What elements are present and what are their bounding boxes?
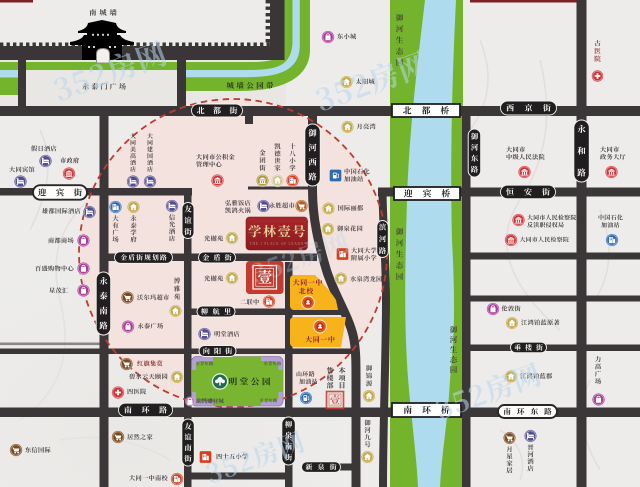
svg-text:THE 1 PLACE OF LEARN: THE 1 PLACE OF LEARN <box>250 242 304 246</box>
